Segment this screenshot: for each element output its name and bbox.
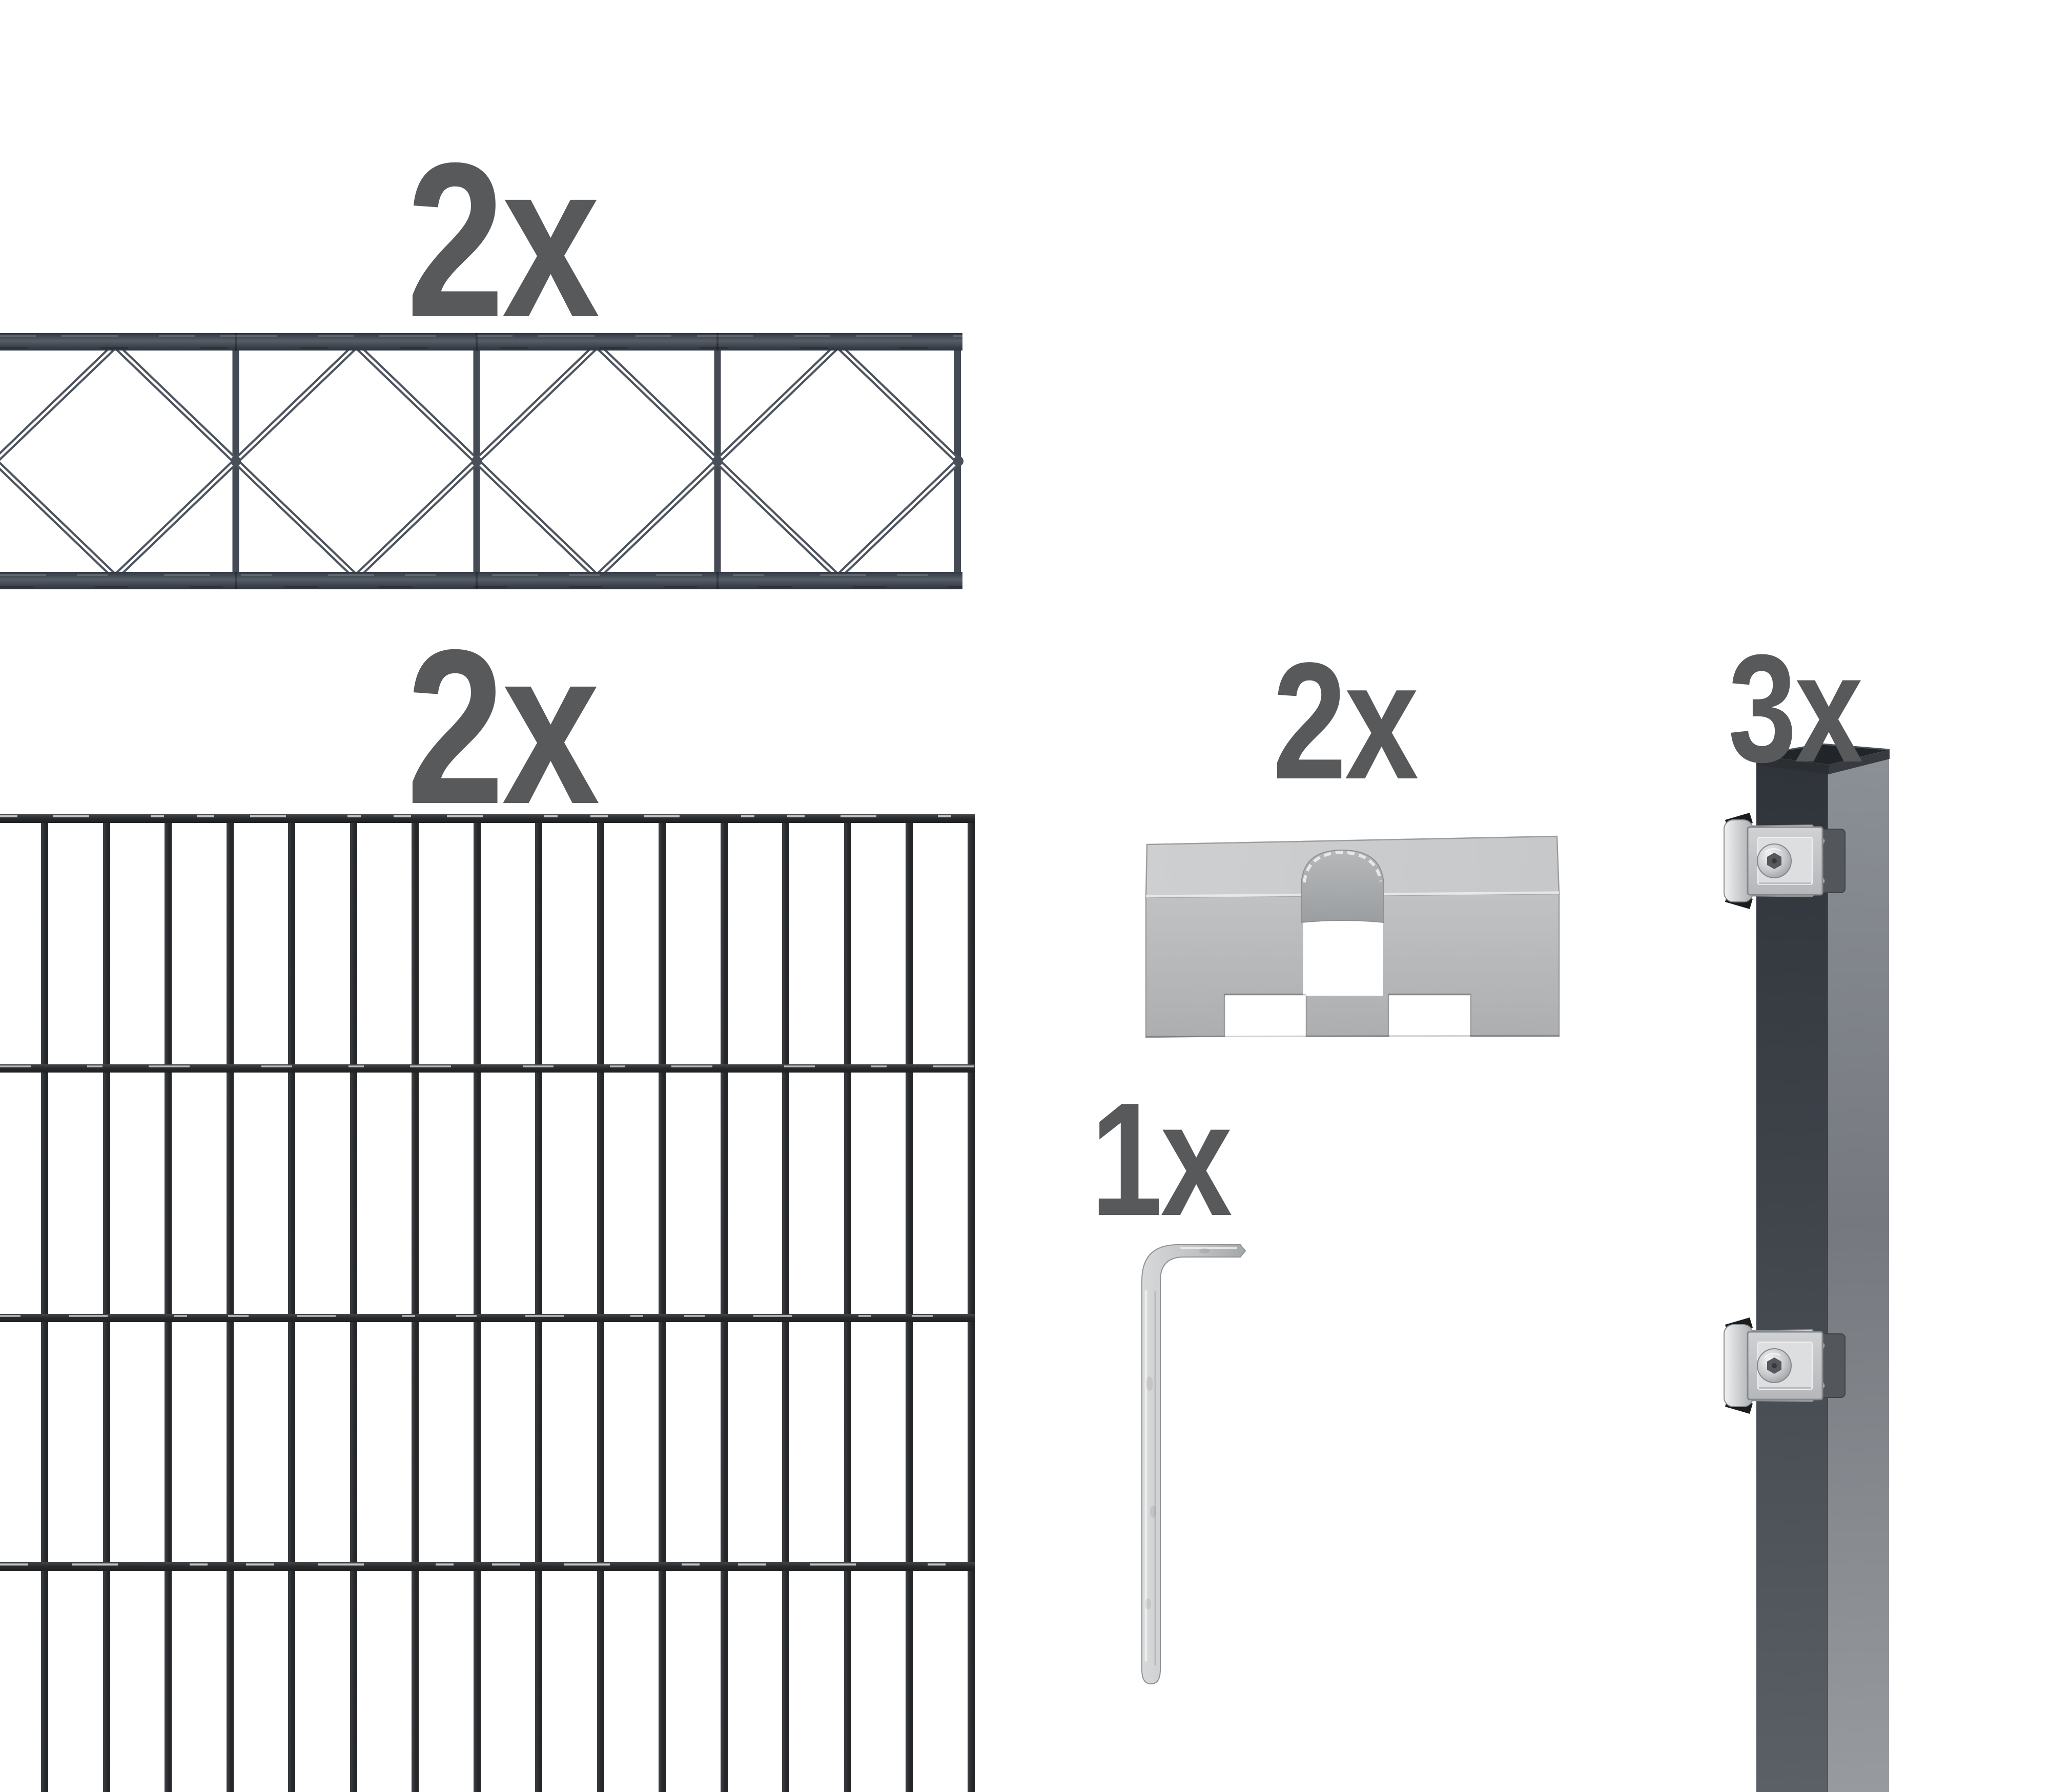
diamond-ornaments [0,341,963,581]
bracket-center-slot [1303,920,1383,996]
post-side-face [1828,758,1889,1792]
quantity-label-ornamental-panel: 2x [406,130,597,351]
mesh-vertical-bars [41,819,975,1792]
mesh-fence-panel [0,814,975,1792]
ornamental-panel-vertical-bars [233,344,961,576]
post-cover-bracket [1146,836,1559,1037]
mesh-horizontal-rods [0,814,975,1571]
fence-post [1724,744,1890,1792]
allen-key-body [1142,1245,1245,1684]
post-front-face [1756,765,1828,1792]
product-parts-overview: 2x 2x 2x 3x 1x [0,0,2050,1792]
allen-key [1142,1245,1245,1684]
quantity-label-mesh-panel: 2x [406,617,597,837]
quantity-label-cover-bracket: 2x [1273,637,1417,804]
quantity-label-post: 3x [1728,631,1861,785]
product-kit-illustration [0,0,2050,1792]
ornamental-fence-panel [0,333,963,589]
quantity-label-allen-key: 1x [1091,1079,1231,1240]
